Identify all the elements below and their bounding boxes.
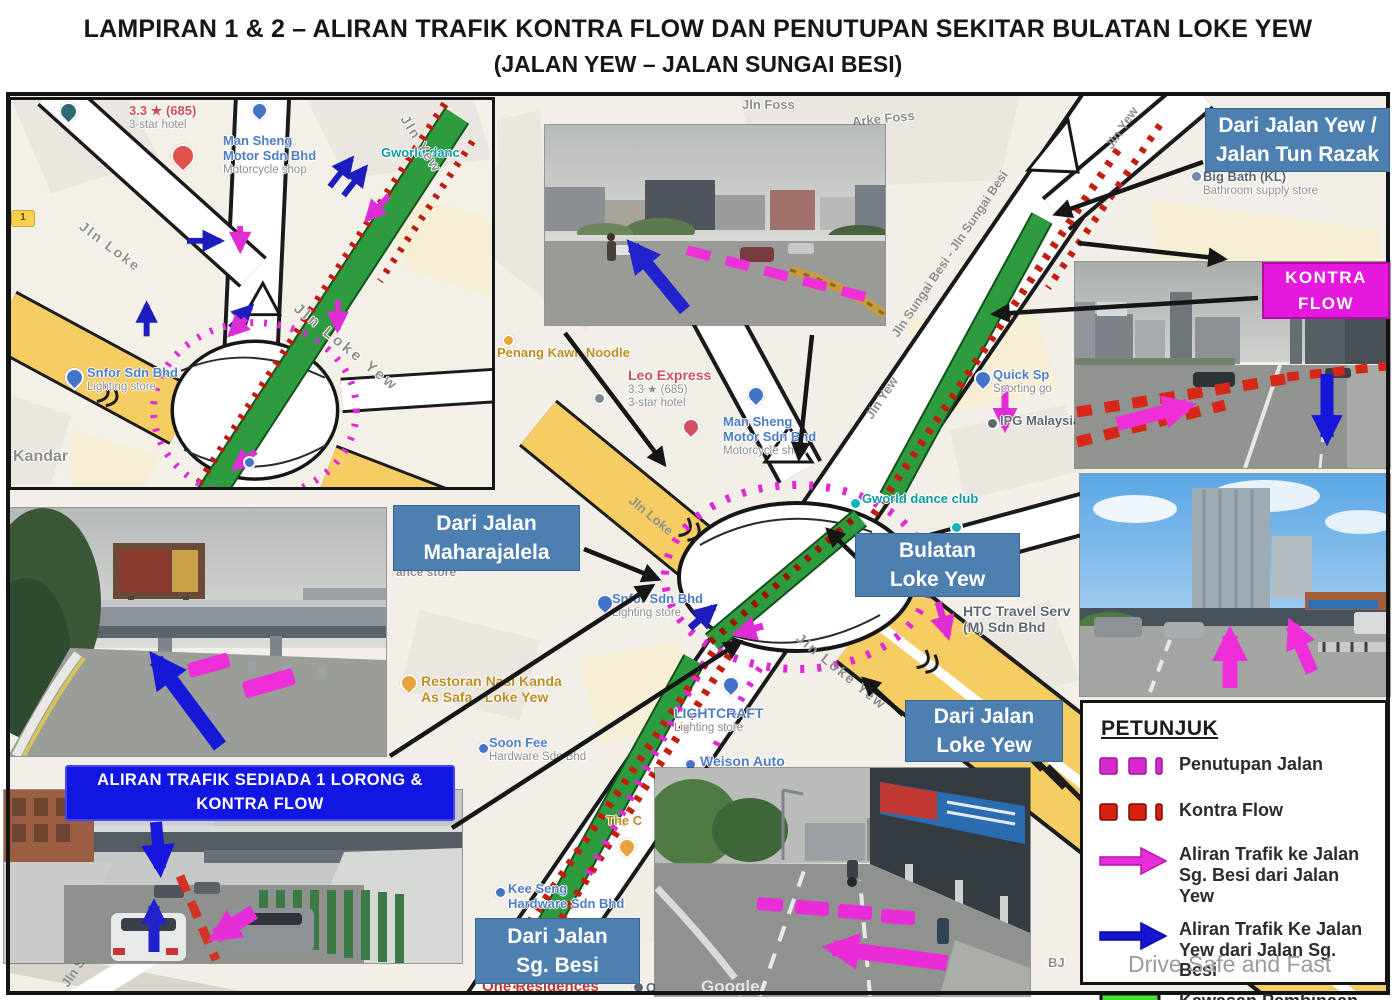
legend-item-kontra: Kontra Flow [1099, 800, 1377, 828]
photo-flyover-maharajalela [8, 508, 386, 756]
legend-item-penutupan: Penutupan Jalan [1099, 754, 1377, 782]
magenta-dashes-icon [1099, 754, 1179, 782]
callout-bulatan-loke-yew: BulatanLoke Yew [855, 533, 1020, 597]
route-shield: 1 [11, 210, 35, 227]
photo-sg-besi-approach [1080, 474, 1390, 696]
poi-restoran-nasi-kandar: Restoran Nasi KandaAs Safa - Loke Yew [421, 674, 562, 706]
poi-hotel-rating: 3.3 ★ (685)3-star hotel [129, 104, 196, 132]
title-line-2: (JALAN YEW – JALAN SUNGAI BESI) [494, 51, 903, 78]
poi-man-sheng: Man ShengMotor Sdn Bhd Motorcycle shop [723, 415, 816, 458]
inset-map-roundabout-zoom: 3.3 ★ (685)3-star hotel Man ShengMotor S… [8, 97, 495, 490]
poi-ipg: IPG Malaysia [1000, 414, 1080, 429]
map-pin [986, 417, 999, 430]
google-watermark-photo: Google [701, 977, 760, 996]
legend-petunjuk: PETUNJUK Penutupan Jalan Kontra Flow Ali… [1080, 700, 1388, 985]
traffic-diagram-page: LAMPIRAN 1 & 2 – ALIRAN TRAFIK KONTRA FL… [0, 0, 1396, 1000]
callout-kontra-flow: KONTRAFLOW [1262, 262, 1390, 319]
poi-snfor-inset: Snfor Sdn BhdLighting store [87, 366, 178, 394]
legend-item-aliran-magenta: Aliran Trafik ke Jalan Sg. Besi dari Jal… [1099, 844, 1377, 907]
poi-leo-express: Leo Express 3.3 ★ (685) 3-star hotel [628, 368, 711, 410]
callout-dari-jalan-maharajalela: Dari JalanMaharajalela [393, 505, 580, 571]
poi-kee-seng: Kee SengHardware Sdn Bhd [508, 882, 624, 912]
poi-quick-sporting: Quick SpSporting go [993, 368, 1052, 396]
poi-htc-travel: HTC Travel Serv(M) Sdn Bhd [963, 604, 1070, 636]
poi-the-c: The C [606, 814, 642, 829]
photo-loke-yew-street: Google [655, 768, 1030, 996]
callout-aliran-trafik-sediada: ALIRAN TRAFIK SEDIADA 1 LORONG &KONTRA F… [65, 765, 455, 821]
legend-heading: PETUNJUK [1101, 717, 1377, 741]
photo-roundabout-street-view [545, 125, 885, 325]
poi-penang-noodle: Penang Kawn Noodle [497, 346, 630, 361]
legend-item-kawasan: Kawasan Pembinaan [1099, 991, 1377, 1000]
poi-soon-hardware: Soon FeeHardware Sdn Bhd [489, 736, 586, 764]
map-pin [243, 456, 256, 469]
poi-big-bath: Big Bath (KL)Bathroom supply store [1203, 170, 1318, 198]
green-box-icon [1099, 991, 1179, 1000]
poi-kandar: Kandar [13, 448, 68, 466]
map-pin [494, 886, 507, 899]
callout-dari-jalan-yew-tun-razak: Dari Jalan Yew /Jalan Tun Razak [1205, 108, 1390, 172]
poi-gworld: Gworld dance club [862, 492, 978, 507]
red-dashes-icon [1099, 800, 1179, 828]
drive-safe-watermark: Drive Safe and Fast [1128, 951, 1331, 978]
map-pin [593, 392, 606, 405]
map-pin [849, 497, 862, 510]
page-title: LAMPIRAN 1 & 2 – ALIRAN TRAFIK KONTRA FL… [0, 0, 1396, 92]
map-pin [1190, 170, 1203, 183]
poi-snfor-center: Snfor Sdn BhdLighting store [612, 592, 703, 620]
street-jln-foss: Jln Foss [742, 98, 795, 113]
magenta-arrow-icon [1099, 844, 1179, 882]
street-bj: BJ [1048, 956, 1065, 971]
poi-man-sheng-inset: Man ShengMotor Sdn Bhd Motorcycle shop [223, 134, 316, 177]
callout-dari-jalan-sg-besi: Dari JalanSg. Besi [475, 918, 640, 984]
poi-lightcraft: LIGHTCRAFTLighting store [674, 706, 763, 735]
title-line-1: LAMPIRAN 1 & 2 – ALIRAN TRAFIK KONTRA FL… [84, 15, 1313, 44]
callout-dari-jalan-loke-yew: Dari JalanLoke Yew [905, 700, 1063, 762]
